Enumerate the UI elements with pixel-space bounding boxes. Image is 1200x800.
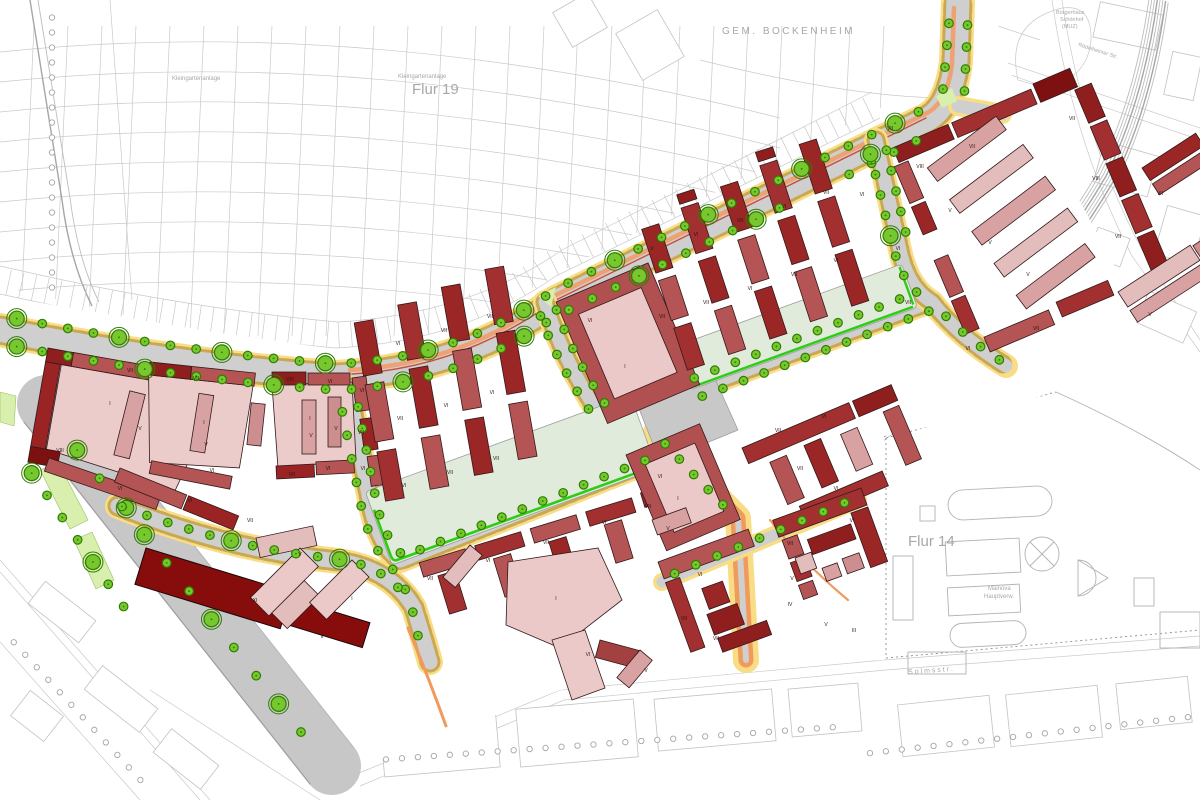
building-storeys-label: VII bbox=[659, 314, 665, 320]
building-storeys-label: VI bbox=[444, 403, 449, 409]
building-storeys-label: VI bbox=[658, 474, 663, 480]
building-storeys-label: VI bbox=[896, 246, 901, 252]
building-storeys-label: VI bbox=[860, 192, 865, 198]
path-line bbox=[38, 0, 99, 302]
building-storeys-label: VI bbox=[834, 258, 839, 264]
building-storeys-label: III bbox=[852, 628, 856, 634]
building-storeys-label: VII bbox=[447, 470, 453, 476]
building-storeys-label: I bbox=[109, 401, 110, 407]
building-storeys-label: VII bbox=[1157, 191, 1163, 197]
building-storeys-label: VII bbox=[737, 218, 743, 224]
building-storeys-label: VI bbox=[490, 390, 495, 396]
building-storeys-label: VI bbox=[602, 520, 607, 526]
building-storeys-label: VII bbox=[543, 540, 549, 546]
building-storeys-label: VIII bbox=[56, 448, 64, 454]
building-storeys-label: VII bbox=[969, 144, 975, 150]
block-c bbox=[272, 372, 356, 479]
building-storeys-label: VII bbox=[427, 576, 433, 582]
building-storeys-label: VI bbox=[210, 468, 215, 474]
building-storeys-label: VII bbox=[493, 456, 499, 462]
building-storeys-label: VI bbox=[966, 346, 971, 352]
label-kleingartenanlage-1: Kleingartenanlage bbox=[172, 76, 221, 82]
building-storeys-label: VII bbox=[797, 466, 803, 472]
building-storeys-label: VII bbox=[193, 376, 199, 382]
label-buergerhaus-line3: (MUZ) bbox=[1062, 24, 1078, 30]
building-storeys-label: I bbox=[677, 496, 678, 502]
building-storeys-label: VII bbox=[787, 541, 793, 547]
building-storeys-label: II bbox=[321, 634, 324, 640]
building-storeys-label: VI bbox=[586, 652, 591, 658]
building-storeys-label: VI bbox=[486, 558, 491, 564]
building-storeys-label: VI bbox=[188, 498, 193, 504]
label-roedelheimer-strasse: Rödelheimer Str. bbox=[1077, 42, 1118, 61]
building-storeys-label: VI bbox=[326, 466, 331, 472]
site-plan-map: GEM. BOCKENHEIM Flur 19 Flur 14 Kleingar… bbox=[0, 0, 1200, 800]
building-storeys-label: VII bbox=[358, 430, 364, 436]
building-storeys-label: VII bbox=[1115, 234, 1121, 240]
building-storeys-label: XI bbox=[253, 598, 258, 604]
label-mainova-line1: Mainova bbox=[988, 586, 1011, 592]
building-storeys-label: VII bbox=[905, 300, 911, 306]
building-storeys-label: I bbox=[624, 364, 625, 370]
green-median bbox=[0, 392, 16, 426]
building-storeys-label: VII bbox=[823, 190, 829, 196]
label-buergerhaus-line2: Schönhof bbox=[1060, 17, 1084, 23]
building-storeys-label: IV bbox=[788, 602, 793, 608]
building-storeys-label: VII bbox=[645, 504, 651, 510]
building-storeys-label: VI bbox=[588, 318, 593, 324]
building-storeys-label: VI bbox=[694, 232, 699, 238]
building-storeys-label: VI bbox=[360, 388, 365, 394]
building-storeys-label: VI bbox=[396, 341, 401, 347]
building-storeys-label: VI bbox=[698, 572, 703, 578]
building-storeys-label: VI bbox=[782, 204, 787, 210]
building-storeys-label: VII bbox=[487, 314, 493, 320]
building-storeys-label: I bbox=[351, 596, 352, 602]
building-storeys-label: VI bbox=[748, 286, 753, 292]
building-storeys-label: VIII bbox=[1092, 176, 1100, 182]
building-storeys-label: VI bbox=[834, 486, 839, 492]
label-gem-bockenheim: GEM. BOCKENHEIM bbox=[722, 26, 855, 37]
label-flur19: Flur 19 bbox=[412, 81, 459, 98]
building-storeys-label: VII bbox=[127, 368, 133, 374]
building-storeys-label: VII bbox=[289, 472, 295, 478]
label-mainova-line2: Hauptverw. bbox=[984, 594, 1014, 600]
building-storeys-label: VI bbox=[328, 379, 333, 385]
building-storeys-label: VII bbox=[681, 616, 687, 622]
building-storeys-label: VII bbox=[1033, 326, 1039, 332]
building-storeys-label: VII bbox=[713, 636, 719, 642]
building-storeys-label: VI bbox=[822, 414, 827, 420]
building-storeys-label: VII bbox=[1069, 116, 1075, 122]
map-canvas: GEM. BOCKENHEIM Flur 19 Flur 14 Kleingar… bbox=[0, 0, 1200, 800]
label-flur14: Flur 14 bbox=[908, 533, 955, 550]
building-storeys-label: VI bbox=[402, 483, 407, 489]
building-storeys-label: VII bbox=[887, 126, 893, 132]
label-kleingartenanlage-2: Kleingartenanlage bbox=[398, 74, 447, 80]
building-storeys-label: VIII bbox=[286, 377, 294, 383]
building-storeys-label: VII bbox=[791, 272, 797, 278]
building-storeys-label: VI bbox=[850, 518, 855, 524]
building-storeys-label: I bbox=[555, 596, 556, 602]
label-buergerhaus-line1: Bürgerhaus bbox=[1056, 10, 1085, 16]
building-storeys-label: VI bbox=[118, 486, 123, 492]
building-storeys-label: VII bbox=[703, 300, 709, 306]
building-storeys-label: VIII bbox=[916, 164, 924, 170]
building-storeys-label: VII bbox=[397, 416, 403, 422]
building-storeys-label: I bbox=[203, 420, 204, 426]
building-storeys-label: VI bbox=[361, 466, 366, 472]
building-storeys-label: I bbox=[309, 416, 310, 422]
building-storeys-label: VII bbox=[775, 428, 781, 434]
building-storeys-label: VII bbox=[441, 328, 447, 334]
building-storeys-label: VII bbox=[247, 518, 253, 524]
